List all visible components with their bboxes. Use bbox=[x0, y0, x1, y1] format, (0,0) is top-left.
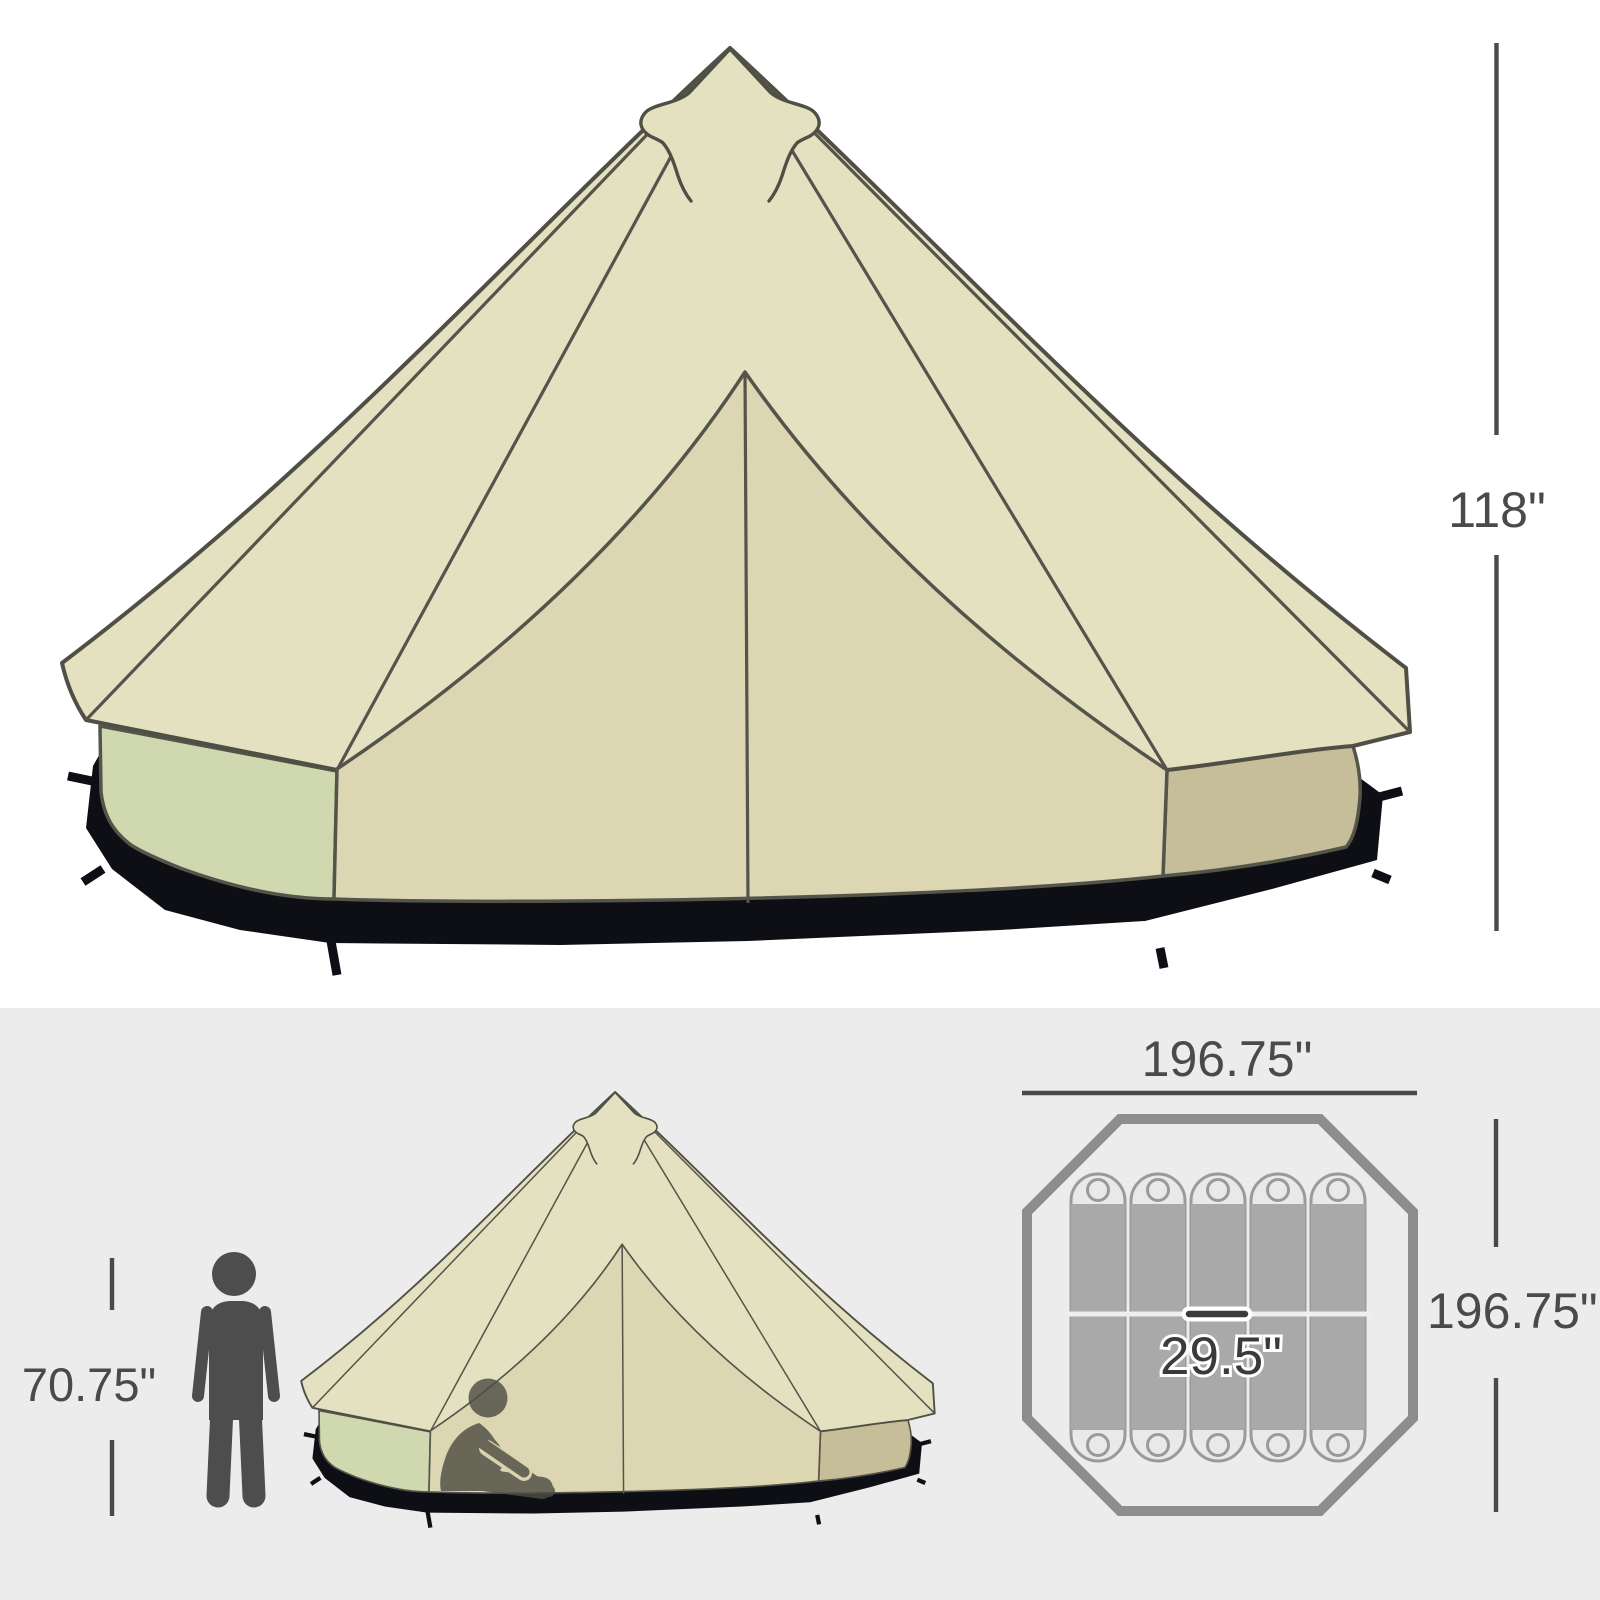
svg-text:70.75": 70.75" bbox=[22, 1358, 156, 1411]
svg-text:196.75": 196.75" bbox=[1427, 1283, 1598, 1339]
svg-text:196.75": 196.75" bbox=[1142, 1031, 1313, 1087]
svg-text:29.5": 29.5" bbox=[1160, 1327, 1282, 1386]
svg-text:118": 118" bbox=[1448, 482, 1545, 538]
